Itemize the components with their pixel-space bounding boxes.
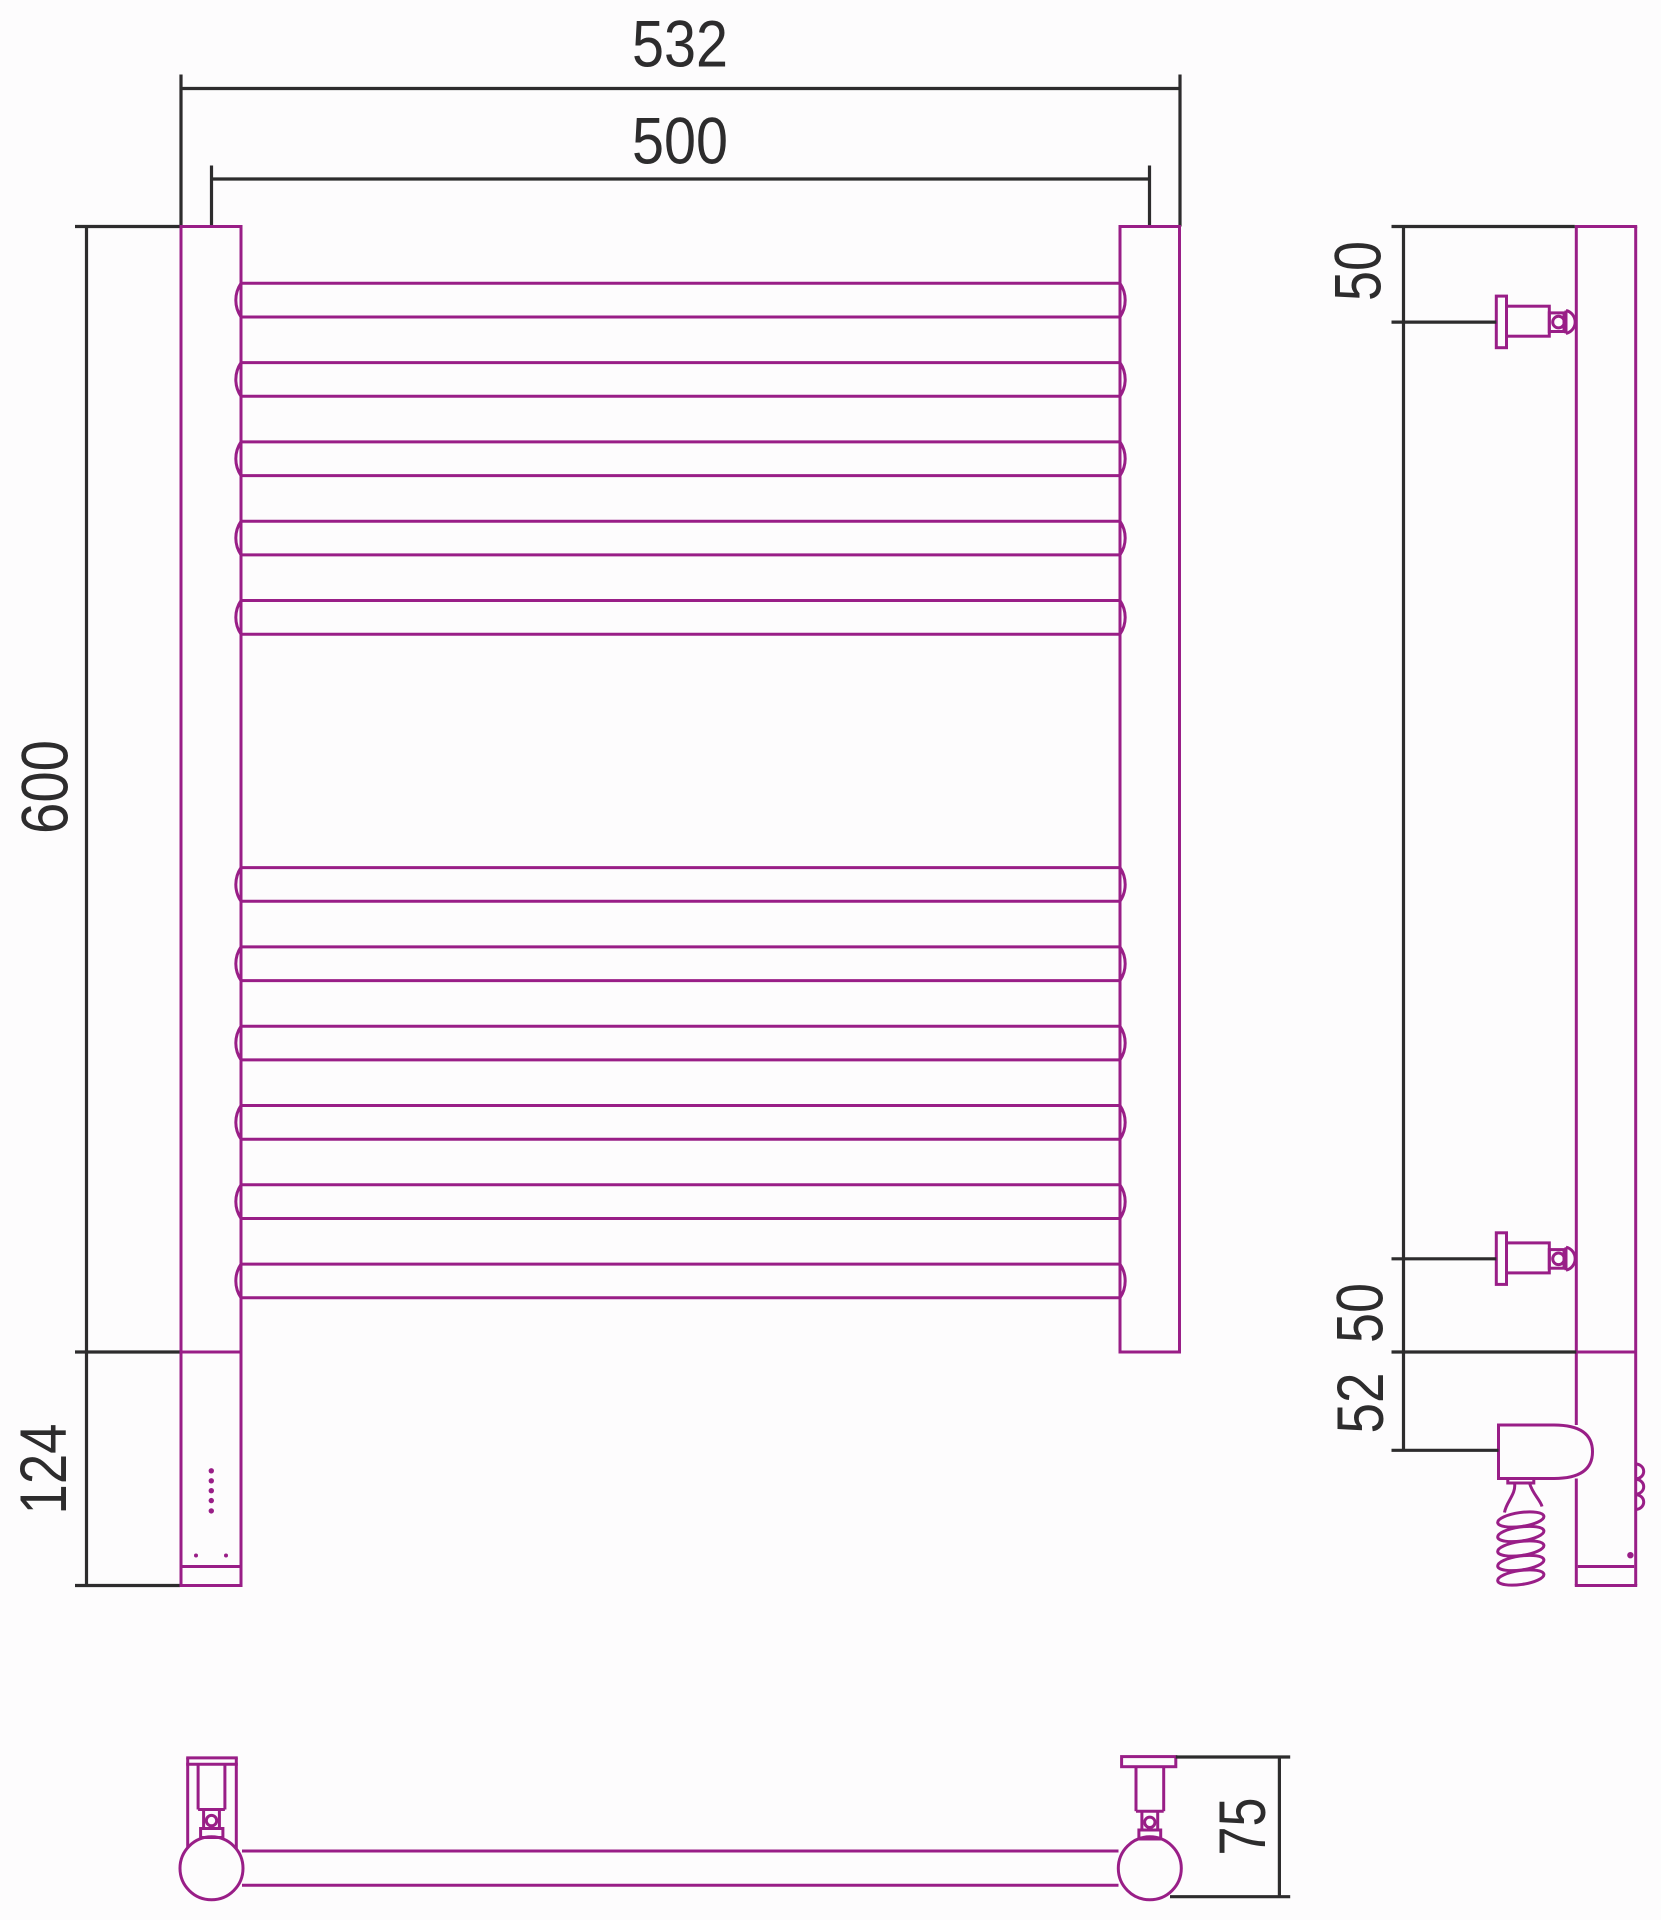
svg-text:600: 600 — [8, 740, 82, 834]
svg-text:75: 75 — [1205, 1798, 1279, 1856]
svg-text:50: 50 — [1321, 241, 1395, 301]
svg-text:500: 500 — [632, 104, 728, 178]
svg-text:124: 124 — [6, 1424, 80, 1515]
svg-text:52: 52 — [1323, 1373, 1397, 1434]
svg-text:50: 50 — [1323, 1283, 1397, 1343]
svg-text:532: 532 — [632, 7, 728, 81]
